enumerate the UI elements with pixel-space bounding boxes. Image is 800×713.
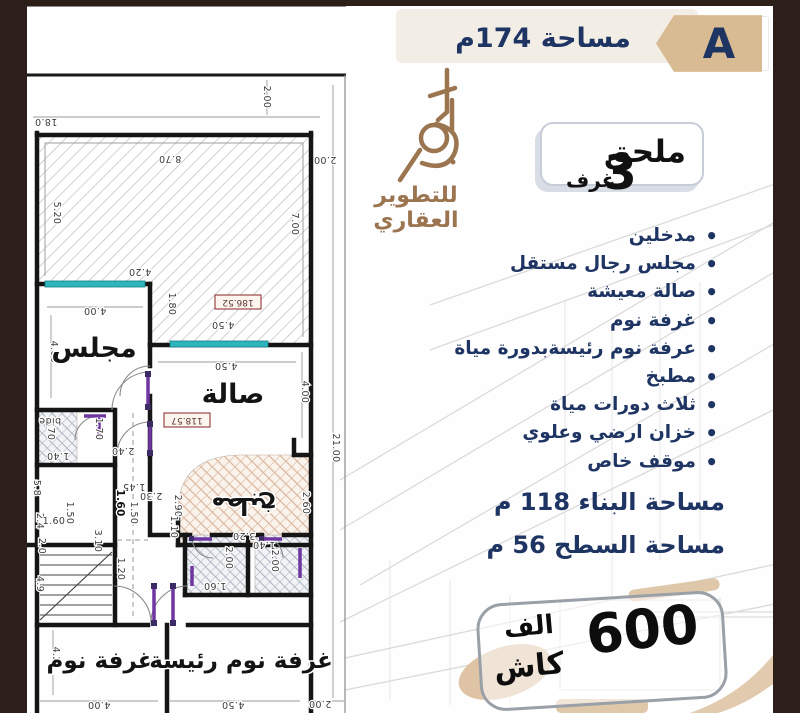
frame-right: [773, 0, 800, 713]
dimension-label: 4.00: [84, 305, 107, 316]
feature-item: خزان ارضي وعلوي: [420, 419, 720, 447]
dimension-label: 8.70: [159, 153, 182, 164]
feature-item: مجلس رجال مستقل: [420, 250, 720, 278]
building-area-line: مساحة البناء 118 م: [380, 488, 725, 516]
dimension-label: 118.57: [171, 415, 203, 425]
dimension-label: 1.40: [47, 450, 70, 461]
dimension-label: 4.20: [129, 266, 152, 277]
dimension-label: 1.20: [115, 558, 126, 581]
logo-calligraphy-icon: [400, 70, 456, 180]
feature-item: عرفة نوم رئيسةبدورة مياة: [420, 335, 720, 363]
dimension-label: 7.00: [289, 213, 300, 236]
area-tag: 118.57: [164, 413, 210, 427]
dimension-label: 1.50: [128, 502, 139, 525]
areas-summary: مساحة البناء 118 م مساحة السطح 56 م: [380, 488, 725, 574]
dimension-label: 1.70: [93, 418, 104, 441]
annex-rooms-word: غرف: [566, 170, 615, 190]
feature-item: موقف خاص: [420, 448, 720, 476]
dimension-label: 1.60: [204, 580, 227, 591]
room-label: صالة: [202, 379, 265, 410]
dimension-label: 2.00: [269, 550, 280, 573]
surface-area-line: مساحة السطح 56 م: [380, 531, 725, 559]
price-unit: الف: [503, 612, 555, 642]
dimension-label: 4.00: [299, 381, 310, 404]
dimension-label: 186.52: [222, 297, 254, 307]
plot-area-label: مساحة 174م: [398, 16, 688, 62]
flyer-page: 118.57186.52 18.02.002.008.705.207.004.2…: [0, 0, 800, 713]
room-label: غرفة نوم رئيسة: [149, 648, 333, 674]
feature-item: ثلاث دورات مياة: [420, 391, 720, 419]
dimension-label: 1.10: [168, 516, 179, 539]
dimension-label: 1.50: [64, 502, 75, 525]
room-label: مطبخ: [211, 492, 276, 520]
room-label: مجلس: [51, 333, 136, 364]
dimension-label: 2.40: [112, 445, 135, 456]
feature-item: مطبخ: [420, 363, 720, 391]
model-badge-letter: A: [676, 14, 762, 74]
dimension-label: 2.0: [36, 538, 47, 554]
feature-item: غرفة نوم: [420, 307, 720, 335]
dimension-label: 1.60: [43, 516, 66, 527]
features-list: مدخلين مجلس رجال مستقل صالة معيشة غرفة ن…: [420, 222, 720, 476]
area-tag: 186.52: [215, 295, 261, 309]
frame-top: [0, 0, 800, 6]
dimension-label: 5.20: [51, 202, 62, 225]
price-amount: 600: [583, 597, 701, 662]
dimension-label: bide: [39, 415, 61, 426]
feature-item: مدخلين: [420, 222, 720, 250]
dimension-label: 1.40: [253, 539, 276, 550]
dimension-label: 2.00: [261, 86, 272, 109]
dimension-label: 2.00: [223, 547, 234, 570]
dimension-label: 2.60: [300, 492, 311, 515]
dimension-label: 5.8: [31, 480, 42, 496]
dimension-label: 4.50: [212, 319, 235, 330]
dimension-label: 1.80: [166, 293, 177, 316]
dimension-label: 4.9: [34, 576, 45, 592]
dimension-label: 1.60: [114, 489, 126, 517]
price-method: كاش: [493, 649, 565, 685]
room-label: غرفة نوم: [47, 648, 154, 674]
frame-left: [0, 0, 27, 713]
dimension-label: 4.00: [88, 699, 111, 710]
dimension-label: 3.10: [92, 530, 103, 553]
dimension-label: 3.20: [233, 530, 256, 541]
dimension-label: 2.90: [172, 495, 183, 518]
dimension-label: 4.50: [222, 699, 245, 710]
feature-item: صالة معيشة: [420, 278, 720, 306]
dimension-label: 18.0: [35, 116, 58, 127]
dimension-label: 4.50: [215, 360, 238, 371]
stairs: [40, 552, 112, 620]
dimension-label: 2.00: [314, 154, 337, 165]
dimension-label: 2.00: [309, 698, 332, 709]
dimension-label: 21.00: [330, 433, 341, 462]
